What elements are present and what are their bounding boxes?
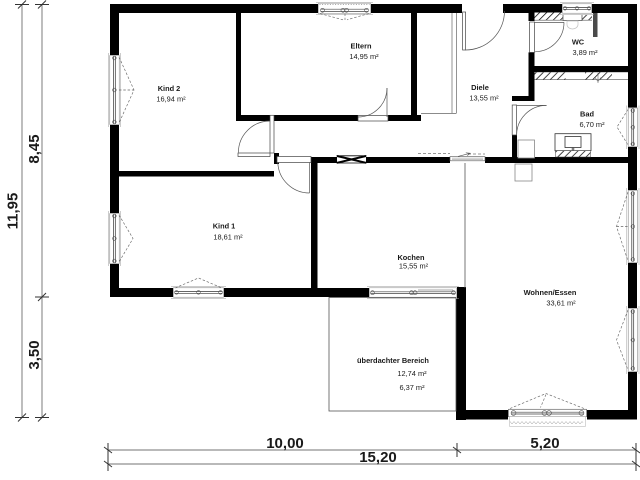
svg-text:12,74 m²: 12,74 m² (397, 369, 427, 378)
svg-text:5,20: 5,20 (530, 435, 559, 452)
svg-text:18,61 m²: 18,61 m² (213, 233, 243, 242)
svg-text:Kind 2: Kind 2 (158, 84, 181, 93)
svg-text:Kind 1: Kind 1 (213, 222, 236, 231)
svg-text:3,50: 3,50 (26, 340, 43, 369)
svg-text:16,94 m²: 16,94 m² (156, 95, 186, 104)
svg-text:8,45: 8,45 (26, 134, 43, 163)
svg-text:13,55 m²: 13,55 m² (469, 94, 499, 103)
svg-text:14,95 m²: 14,95 m² (349, 52, 379, 61)
svg-text:WC: WC (572, 38, 585, 47)
svg-text:überdachter Bereich: überdachter Bereich (357, 356, 429, 365)
svg-text:3,89 m²: 3,89 m² (572, 48, 598, 57)
svg-text:Eltern: Eltern (351, 42, 372, 51)
svg-text:Diele: Diele (471, 83, 489, 92)
svg-text:10,00: 10,00 (266, 435, 304, 452)
svg-text:15,20: 15,20 (359, 449, 397, 466)
svg-text:6,70 m²: 6,70 m² (579, 120, 605, 129)
svg-text:Wohnen/Essen: Wohnen/Essen (524, 288, 577, 297)
svg-text:6,37 m²: 6,37 m² (399, 383, 425, 392)
svg-text:Bad: Bad (580, 110, 594, 119)
svg-text:33,61 m²: 33,61 m² (546, 299, 576, 308)
svg-text:11,95: 11,95 (5, 193, 22, 230)
svg-text:15,55 m²: 15,55 m² (399, 262, 429, 271)
